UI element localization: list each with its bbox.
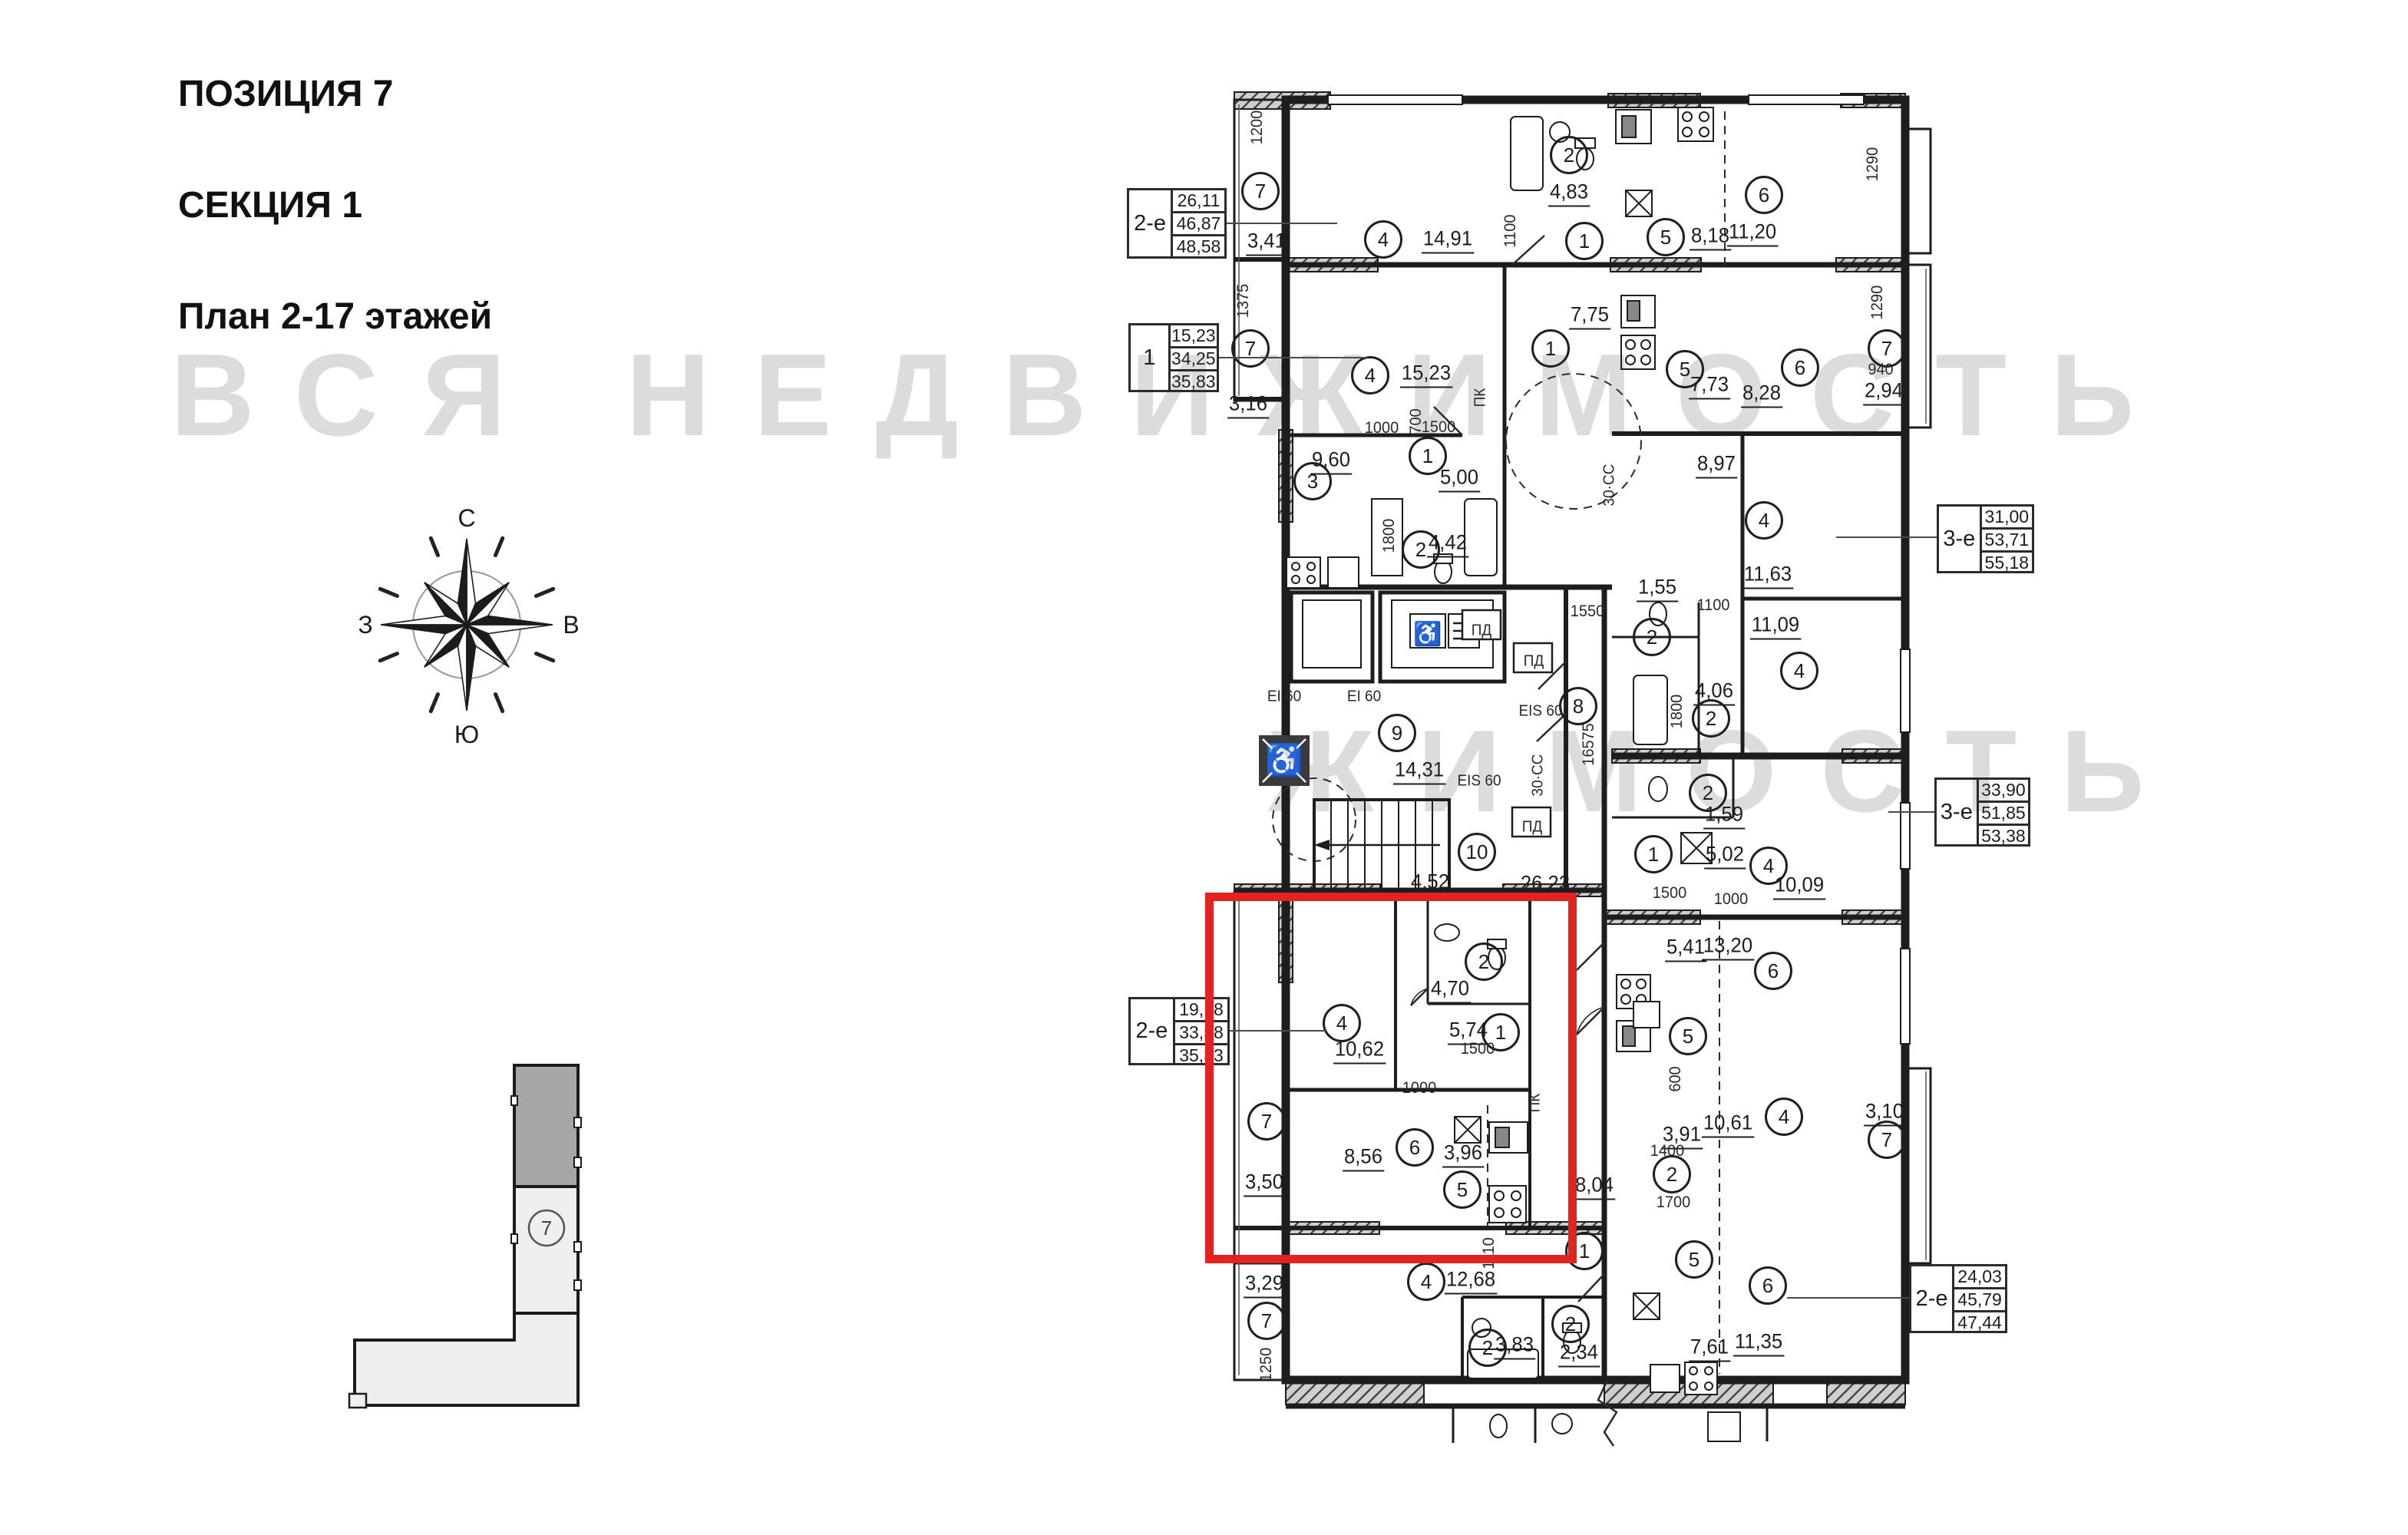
room-area-label: 2,34 <box>1558 1341 1600 1368</box>
plan-text-label: 30·СС <box>1601 464 1619 507</box>
leader-line <box>1219 357 1368 358</box>
apartment-areas: 15,2334,2535,83 <box>1168 325 1217 390</box>
room-area-label: 8,97 <box>1696 452 1737 479</box>
area-value: 26,11 <box>1173 190 1224 211</box>
dimension-label: 1250 <box>1257 1348 1276 1381</box>
room-number-circle: 7 <box>1231 329 1270 368</box>
plan-text-label: ПК <box>1472 388 1490 408</box>
plan-text-label: 30·СС <box>1530 754 1548 797</box>
apartment-areas: 33,9051,8553,38 <box>1977 780 2028 844</box>
room-number-circle: 4 <box>1351 356 1389 394</box>
apartment-info-box: 2-е26,1146,8748,58 <box>1127 188 1227 259</box>
room-area-label: 14,31 <box>1393 758 1445 785</box>
room-area-label: 1,59 <box>1703 803 1745 830</box>
room-number-circle: 1 <box>1531 329 1570 368</box>
dimension-label: 1200 <box>1248 111 1267 144</box>
apartment-areas: 26,1146,8748,58 <box>1171 190 1224 256</box>
room-area-label: 3,10 <box>1864 1100 1905 1127</box>
plan-annotations: 73,41414,9124,83158,18611,2073,16415,233… <box>0 0 2408 1535</box>
room-area-label: 8,18 <box>1690 224 1731 251</box>
dimension-label: 1800 <box>1380 519 1399 553</box>
apartment-type: 3-е <box>1937 780 1977 844</box>
room-number-circle: 6 <box>1745 176 1783 214</box>
room-number-circle: 2 <box>1551 1305 1590 1343</box>
room-area-label: 11,63 <box>1742 563 1793 589</box>
dimension-label: 1100 <box>1501 215 1520 248</box>
dimension-label: 940 <box>1868 361 1893 379</box>
room-area-label: 3,29 <box>1244 1272 1285 1299</box>
room-number-circle: 8 <box>1559 687 1597 725</box>
leader-line <box>1888 811 1934 813</box>
area-value: 35,83 <box>1171 369 1217 392</box>
apartment-type: 2-е <box>1129 190 1171 256</box>
area-value: 24,03 <box>1954 1266 2005 1287</box>
room-number-circle: 4 <box>1745 501 1783 540</box>
dimension-label: 1290 <box>1868 286 1887 319</box>
area-value: 53,71 <box>1982 527 2032 550</box>
room-area-label: 10,61 <box>1702 1111 1754 1138</box>
dimension-label: 1500 <box>1422 418 1455 437</box>
dimension-label: 600 <box>1666 1066 1685 1091</box>
room-number-circle: 1 <box>1565 222 1604 260</box>
room-number-circle: 7 <box>1868 1121 1906 1159</box>
room-number-circle: 6 <box>1749 1266 1787 1305</box>
room-area-label: 8,28 <box>1741 381 1782 408</box>
leader-line <box>1787 1297 1909 1299</box>
area-value: 51,85 <box>1979 801 2028 824</box>
area-value: 53,38 <box>1979 824 2028 847</box>
plan-text-label: EI 60 <box>1267 688 1301 706</box>
room-area-label: 3,16 <box>1227 392 1269 419</box>
floor-plan-page: ПОЗИЦИЯ 7 СЕКЦИЯ 1 План 2-17 этажей С В … <box>0 0 2408 1535</box>
apartment-info-box: 3-е31,0053,7155,18 <box>1937 504 2034 573</box>
room-area-label: 9,60 <box>1310 448 1352 475</box>
room-area-label: 7,75 <box>1569 303 1610 330</box>
room-area-label: 4,42 <box>1427 531 1468 558</box>
room-number-circle: 7 <box>1247 1302 1286 1340</box>
room-area-label: 11,20 <box>1727 220 1778 247</box>
plan-text-label: ПД <box>1522 819 1543 837</box>
room-number-circle: 4 <box>1407 1263 1445 1301</box>
dimension-label: 1550 <box>1571 602 1604 621</box>
leader-line <box>1227 223 1337 224</box>
room-number-circle: 2 <box>1633 618 1671 656</box>
room-area-label: 14,91 <box>1422 227 1474 254</box>
plan-text-label: ПД <box>1524 653 1544 671</box>
room-area-label: 2,94 <box>1863 379 1904 406</box>
room-number-circle: 7 <box>1241 172 1280 210</box>
dimension-label: 1500 <box>1653 884 1686 903</box>
dimension-label: 1400 <box>1650 1142 1684 1160</box>
area-value: 47,44 <box>1954 1310 2005 1333</box>
apartment-info-box: 2-е24,0345,7947,44 <box>1909 1264 2007 1333</box>
area-value: 33,90 <box>1979 780 2028 801</box>
room-area-label: 8,04 <box>1574 1174 1615 1200</box>
dimension-label: 16575 <box>1580 723 1598 765</box>
room-area-label: 12,68 <box>1445 1268 1497 1295</box>
room-area-label: 5,41 <box>1665 936 1706 962</box>
room-number-circle: 1 <box>1634 835 1673 873</box>
room-area-label: 7,73 <box>1689 373 1730 400</box>
room-number-circle: 9 <box>1378 714 1416 752</box>
area-value: 46,87 <box>1173 211 1224 234</box>
area-value: 15,23 <box>1171 325 1217 346</box>
room-area-label: 1,55 <box>1637 576 1678 602</box>
plan-text-label: EI 60 <box>1347 688 1381 706</box>
highlight-rectangle <box>1205 893 1577 1263</box>
plan-text-label: ПД <box>1472 622 1492 640</box>
room-area-label: 3,83 <box>1494 1333 1535 1360</box>
room-area-label: 4,06 <box>1693 679 1735 706</box>
room-number-circle: 2 <box>1653 1155 1691 1193</box>
room-area-label: 4,83 <box>1548 180 1590 207</box>
room-area-label: 5,02 <box>1704 843 1746 870</box>
plan-text-label: EIS 60 <box>1518 703 1562 721</box>
leader-line <box>1836 536 1937 538</box>
room-area-label: 13,20 <box>1702 934 1754 961</box>
apartment-type: 2-е <box>1131 999 1173 1063</box>
room-area-label: 15,23 <box>1400 361 1452 388</box>
apartment-info-box: 115,2334,2535,83 <box>1128 323 1219 392</box>
room-area-label: 3,41 <box>1246 229 1287 256</box>
dimension-label: 1000 <box>1365 419 1399 437</box>
dimension-label: 1800 <box>1668 695 1686 728</box>
room-number-circle: 10 <box>1458 833 1496 871</box>
plan-text-label: EIS 60 <box>1457 773 1501 791</box>
area-value: 48,58 <box>1173 234 1224 257</box>
apartment-areas: 31,0053,7155,18 <box>1980 507 2032 571</box>
dimension-label: 1375 <box>1234 284 1253 318</box>
room-area-label: 5,00 <box>1439 466 1480 493</box>
area-value: 34,25 <box>1171 346 1217 369</box>
dimension-label: 1290 <box>1864 147 1882 181</box>
room-number-circle: 5 <box>1647 218 1685 256</box>
dimension-label: 1100 <box>1697 596 1730 615</box>
room-area-label: 7,61 <box>1689 1335 1730 1362</box>
area-value: 55,18 <box>1982 550 2032 573</box>
room-number-circle: 2 <box>1550 136 1588 174</box>
apartment-info-box: 3-е33,9051,8553,38 <box>1934 777 2030 847</box>
apartment-type: 2-е <box>1911 1266 1952 1331</box>
room-area-label: 10,09 <box>1773 873 1825 900</box>
apartment-type: 1 <box>1131 325 1168 390</box>
room-number-circle: 4 <box>1364 220 1402 259</box>
room-number-circle: 5 <box>1669 1017 1707 1055</box>
area-value: 31,00 <box>1982 507 2032 527</box>
room-number-circle: 6 <box>1781 348 1819 387</box>
apartment-type: 3-е <box>1939 507 1980 571</box>
apartment-areas: 24,0345,7947,44 <box>1952 1266 2005 1331</box>
room-area-label: 11,35 <box>1733 1330 1784 1357</box>
room-number-circle: 4 <box>1780 652 1818 690</box>
dimension-label: 1000 <box>1714 890 1748 909</box>
room-area-label: 11,09 <box>1750 613 1801 640</box>
room-number-circle: 5 <box>1675 1240 1713 1279</box>
room-number-circle: 6 <box>1754 952 1792 990</box>
dimension-label: 1700 <box>1657 1193 1690 1212</box>
room-number-circle: 4 <box>1765 1098 1803 1136</box>
area-value: 45,79 <box>1954 1287 2005 1310</box>
